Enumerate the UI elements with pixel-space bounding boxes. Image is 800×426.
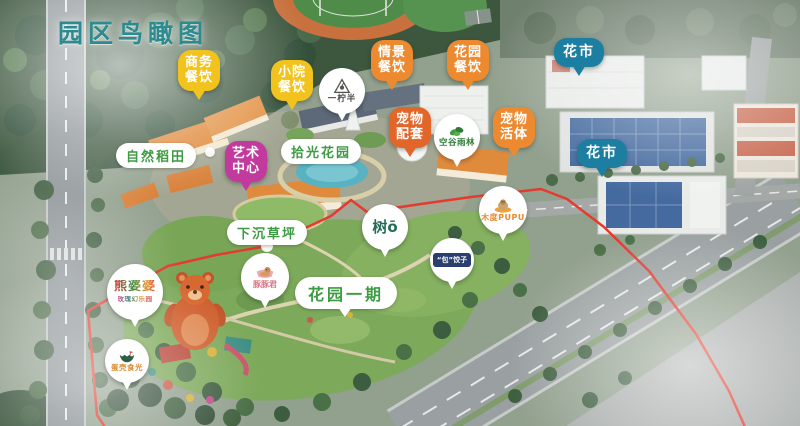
- pin-art-center: 艺术 中心: [225, 141, 267, 182]
- pin-label: 宠物 活体: [500, 112, 528, 142]
- eggshell-boat-icon: [118, 350, 136, 363]
- park-aerial-map: 园区鸟瞰图 商务 餐饮 小院 餐饮 情景 餐饮 花园 餐饮 一柠半 自然稻田 艺…: [0, 0, 800, 426]
- page-title: 园区鸟瞰图: [58, 14, 208, 50]
- pin-label: 熊婆婆: [114, 280, 156, 294]
- pin-business-dining: 商务 餐饮: [178, 50, 220, 91]
- pin-label: 花市: [586, 145, 618, 161]
- pin-label: “包”饺子: [433, 253, 471, 267]
- pin-bear-granny-rose-park: 熊婆婆 玫瑰幻乐园: [107, 264, 163, 320]
- pin-garden-dining: 花园 餐饮: [447, 40, 489, 81]
- pin-courtyard-dining: 小院 餐饮: [271, 60, 313, 101]
- pin-dumpling-shop: “包”饺子: [430, 238, 474, 282]
- label-shiguang-garden: 拾光花园: [281, 139, 361, 164]
- pin-flower-market-2: 花市: [577, 139, 627, 168]
- pin-label: 小院 餐饮: [278, 65, 306, 95]
- pet-on-cushion-icon: [493, 198, 513, 213]
- label-natural-ricefield: 自然稻田: [116, 143, 196, 168]
- pin-label: 树ō: [372, 219, 397, 236]
- pin-mudu-pupu: 木度PUPU: [479, 186, 527, 234]
- pin-label: 空谷雨林: [439, 139, 475, 148]
- connector-dot: [205, 147, 215, 157]
- capybara-in-bowl-icon: [255, 265, 275, 280]
- pin-konggu-rainforest: 空谷雨林: [434, 114, 480, 160]
- pin-sublabel: 玫瑰幻乐园: [118, 296, 153, 304]
- pin-label: 豚豚君: [253, 281, 277, 290]
- pin-label: 商务 餐饮: [185, 55, 213, 85]
- pin-label: 宠物 配套: [396, 112, 424, 142]
- pin-label: 花市: [563, 44, 595, 60]
- pin-label: 艺术 中心: [232, 146, 260, 176]
- pin-label: 蛋壳食光: [111, 364, 143, 372]
- pin-label: 情景 餐饮: [378, 45, 406, 75]
- pin-label: 一柠半: [328, 95, 357, 104]
- triangle-seed-icon: [333, 78, 351, 94]
- leaf-icon: [448, 125, 466, 138]
- pin-label: 花园 餐饮: [454, 45, 482, 75]
- pin-flower-market-1: 花市: [554, 38, 604, 67]
- pin-yiningban-shop: 一柠半: [319, 68, 365, 114]
- pin-pet-supporting: 宠物 配套: [389, 107, 431, 148]
- pin-label: 木度PUPU: [481, 214, 525, 223]
- pin-tuntun-capybara: 豚豚君: [241, 253, 289, 301]
- pin-shu-brand: 树ō: [362, 204, 408, 250]
- pin-pet-live: 宠物 活体: [493, 107, 535, 148]
- label-sunken-lawn: 下沉草坪: [227, 220, 307, 245]
- pin-eggshell-foodtime: 蛋壳食光: [105, 339, 149, 383]
- label-garden-phase1: 花园一期: [295, 277, 397, 309]
- pin-scene-dining: 情景 餐饮: [371, 40, 413, 81]
